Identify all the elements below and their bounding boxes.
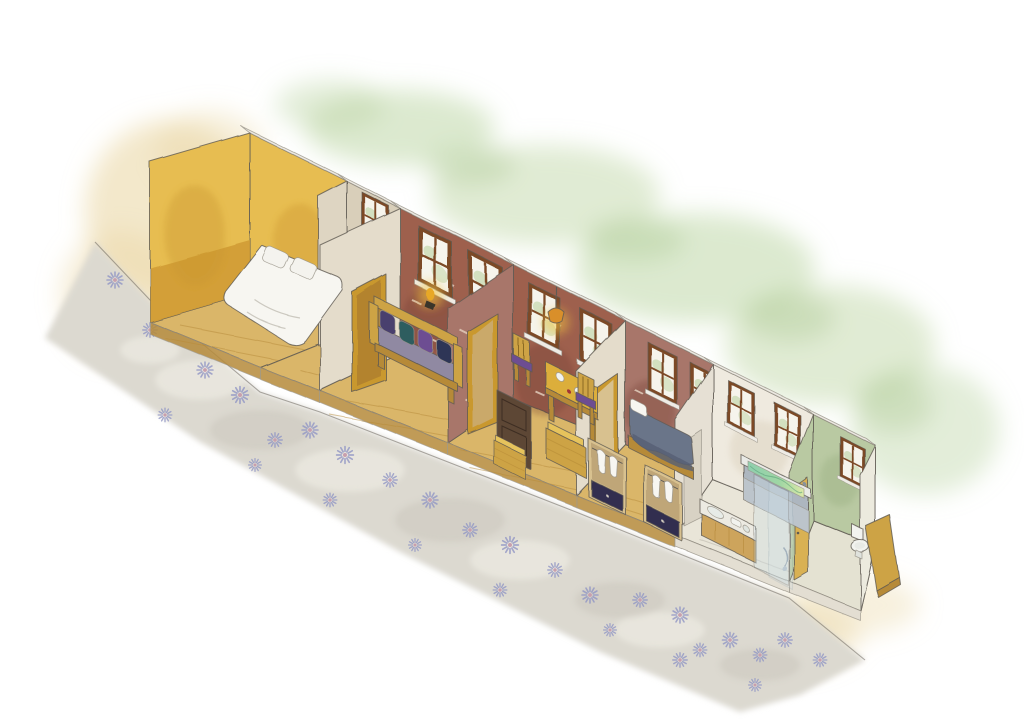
sconce-flame <box>426 288 434 300</box>
bench-leg <box>378 352 384 369</box>
lamp-shade <box>548 308 564 323</box>
watercolor-cutaway-illustration <box>0 0 1024 720</box>
door-opening <box>473 320 493 428</box>
bench-arm <box>454 344 463 388</box>
wall-wash <box>165 185 225 285</box>
illustration-canvas <box>0 0 1024 720</box>
table-leg <box>549 395 554 421</box>
bench-leg <box>448 387 454 404</box>
bench-arm <box>369 302 378 346</box>
shower-screen-2 <box>768 481 792 589</box>
door-knob <box>796 531 799 534</box>
toilet-seat <box>855 543 866 549</box>
